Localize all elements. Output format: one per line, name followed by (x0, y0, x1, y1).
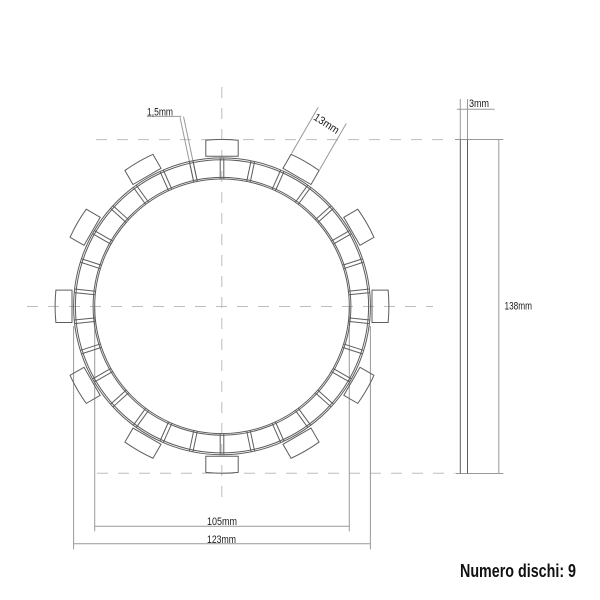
svg-text:13mm: 13mm (311, 111, 341, 136)
svg-text:1,5mm: 1,5mm (147, 107, 173, 119)
svg-text:138mm: 138mm (505, 301, 533, 313)
svg-text:105mm: 105mm (207, 516, 237, 528)
svg-text:3mm: 3mm (469, 98, 489, 110)
svg-text:123mm: 123mm (207, 534, 236, 546)
svg-text:Numero dischi: 9: Numero dischi: 9 (460, 561, 576, 581)
